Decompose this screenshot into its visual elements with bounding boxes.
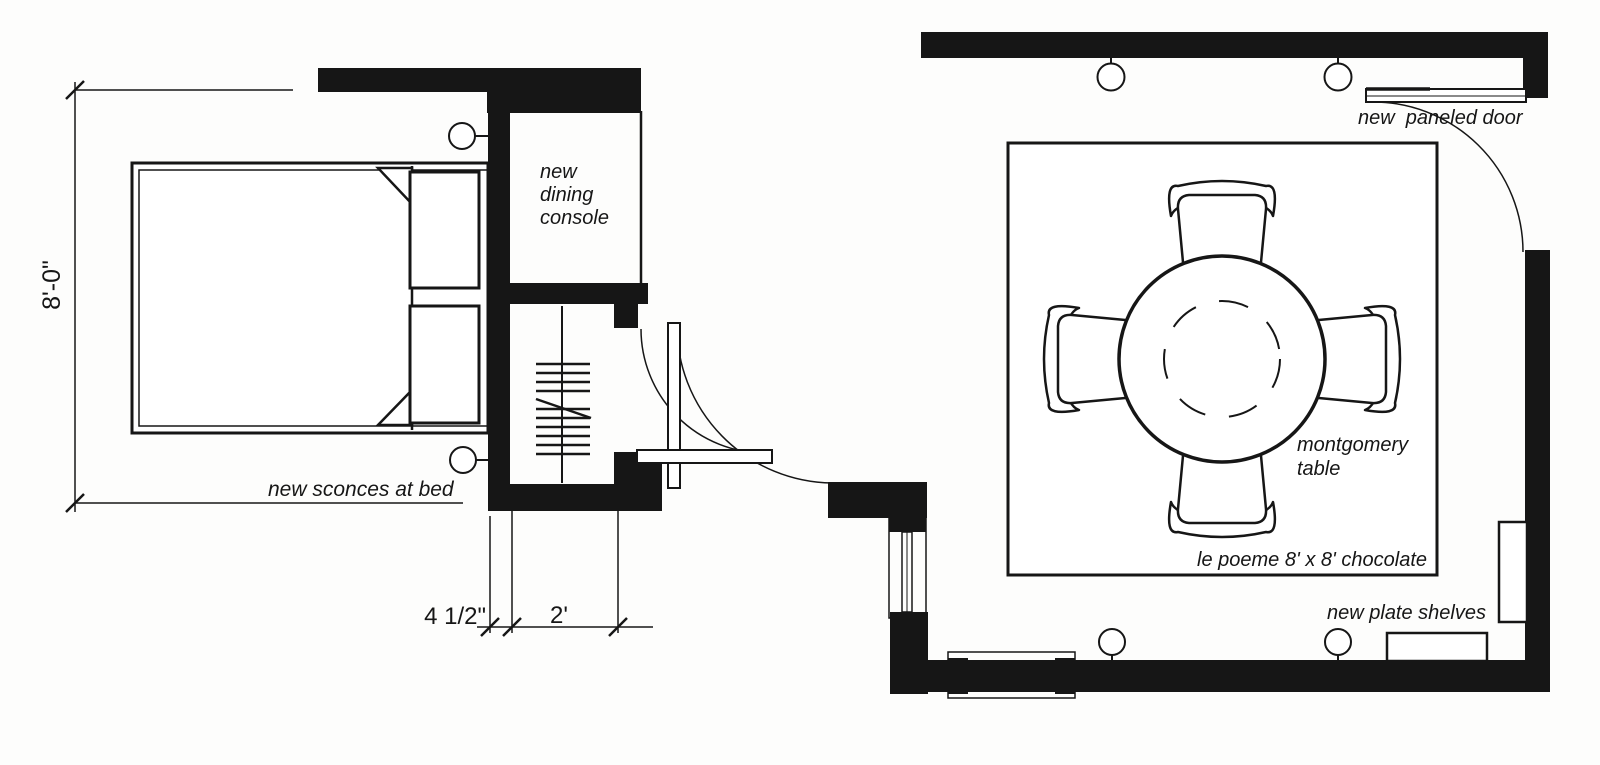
window-jamb	[948, 658, 968, 694]
pillow-bottom	[410, 306, 479, 423]
door-leaf-closed	[637, 450, 772, 463]
label-dining-console-1: new	[540, 161, 578, 183]
dining-right-wall	[1525, 250, 1550, 692]
light-icon	[1325, 629, 1351, 655]
light-icon	[1325, 64, 1352, 91]
label-rug: le poeme 8' x 8' chocolate	[1197, 549, 1427, 571]
light-icon	[1099, 629, 1125, 655]
plate-shelf-east	[1499, 522, 1527, 622]
sconce-icon	[450, 447, 476, 473]
dimension-text-4half: 4 1/2"	[424, 603, 486, 630]
console-bottom-wall	[510, 283, 648, 304]
hall-wall-stub	[828, 482, 927, 518]
bedroom	[132, 123, 489, 473]
plate-shelf-south	[1387, 633, 1487, 661]
label-montgomery-2: table	[1297, 458, 1340, 480]
corner-wall-block	[890, 612, 928, 694]
console-top-wall	[487, 68, 641, 113]
label-dining-console-3: console	[540, 207, 609, 229]
sconce-icon	[449, 123, 475, 149]
dimension-text-2ft: 2'	[550, 602, 568, 629]
label-plate-shelves: new plate shelves	[1327, 602, 1486, 624]
label-sconces: new sconces at bed	[268, 478, 455, 501]
label-montgomery-1: montgomery	[1297, 434, 1409, 456]
label-paneled-door: new paneled door	[1358, 107, 1524, 129]
dining-bottom-wall	[890, 660, 1550, 692]
floor-plan: 8'-0" 4 1/2" 2' new dining console new s…	[0, 0, 1600, 765]
bedroom-top-wall	[318, 68, 490, 92]
closet-door-jamb-top	[614, 304, 638, 328]
closet-bottom-wall	[488, 484, 633, 511]
window-jamb	[1055, 658, 1075, 694]
bedroom-closet-partition-wall	[488, 92, 510, 511]
pillow-top	[410, 172, 479, 288]
dining-top-wall	[921, 32, 1548, 58]
label-dining-console-2: dining	[540, 184, 593, 206]
dimension-text-8ft: 8'-0"	[38, 260, 66, 310]
window-jamb	[889, 516, 926, 532]
dining-table-top	[1119, 256, 1325, 462]
light-icon	[1098, 64, 1125, 91]
